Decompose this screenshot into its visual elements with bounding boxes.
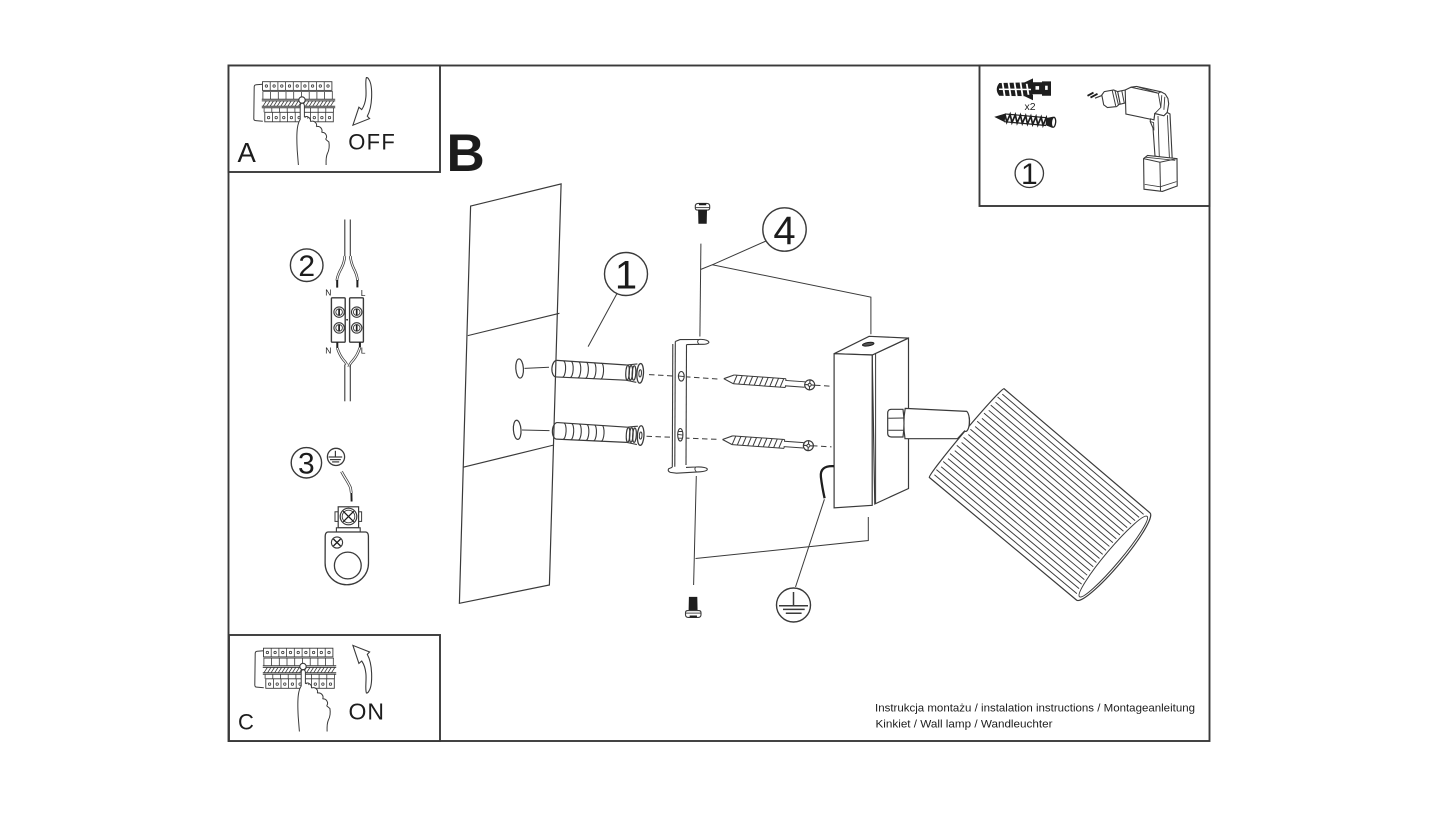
svg-text:2: 2 [298, 250, 315, 283]
svg-text:Kinkiet / Wall lamp / Wandleuc: Kinkiet / Wall lamp / Wandleuchter [876, 719, 1053, 731]
svg-text:OFF: OFF [348, 130, 396, 155]
svg-text:Instrukcja montażu / instalati: Instrukcja montażu / instalation instruc… [875, 703, 1195, 715]
svg-text:4: 4 [773, 209, 795, 253]
svg-text:ON: ON [349, 698, 386, 724]
svg-text:L: L [361, 345, 366, 355]
svg-text:1: 1 [1021, 158, 1038, 191]
svg-text:A: A [238, 137, 257, 168]
svg-text:N: N [325, 288, 331, 298]
svg-text:x2: x2 [1024, 101, 1035, 113]
svg-text:3: 3 [298, 448, 315, 481]
svg-text:C: C [238, 710, 254, 735]
svg-text:N: N [325, 346, 331, 356]
svg-text:B: B [447, 124, 485, 183]
svg-text:L: L [361, 288, 366, 298]
svg-text:1: 1 [615, 253, 637, 297]
